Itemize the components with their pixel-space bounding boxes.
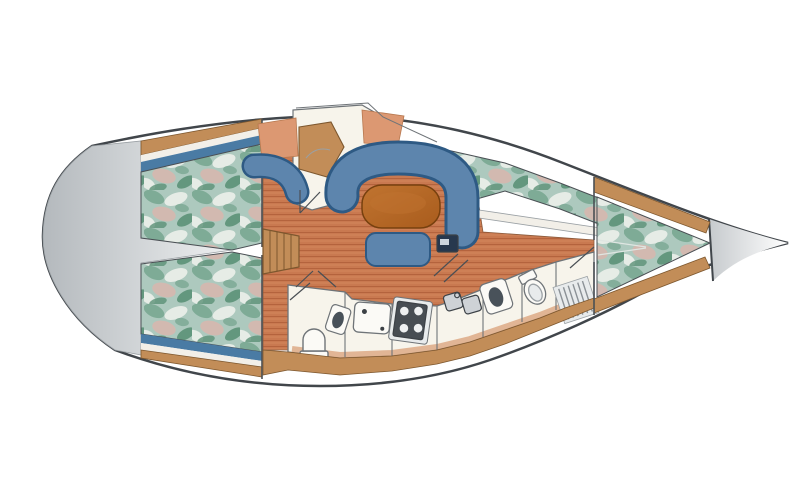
port-aft-cabin [141, 119, 262, 250]
floor-plan-canvas [0, 0, 810, 500]
salon-stool [366, 233, 430, 266]
starboard-aft-cabin [141, 252, 262, 379]
salon-table [362, 185, 440, 228]
settee-end-cabinet [437, 235, 458, 252]
companionway-steps [263, 229, 299, 274]
floor-plan-page [0, 0, 810, 500]
galley-sink [353, 302, 391, 334]
anchor-locker [709, 219, 788, 281]
table-highlight [370, 192, 426, 214]
galley-stove [388, 297, 433, 345]
